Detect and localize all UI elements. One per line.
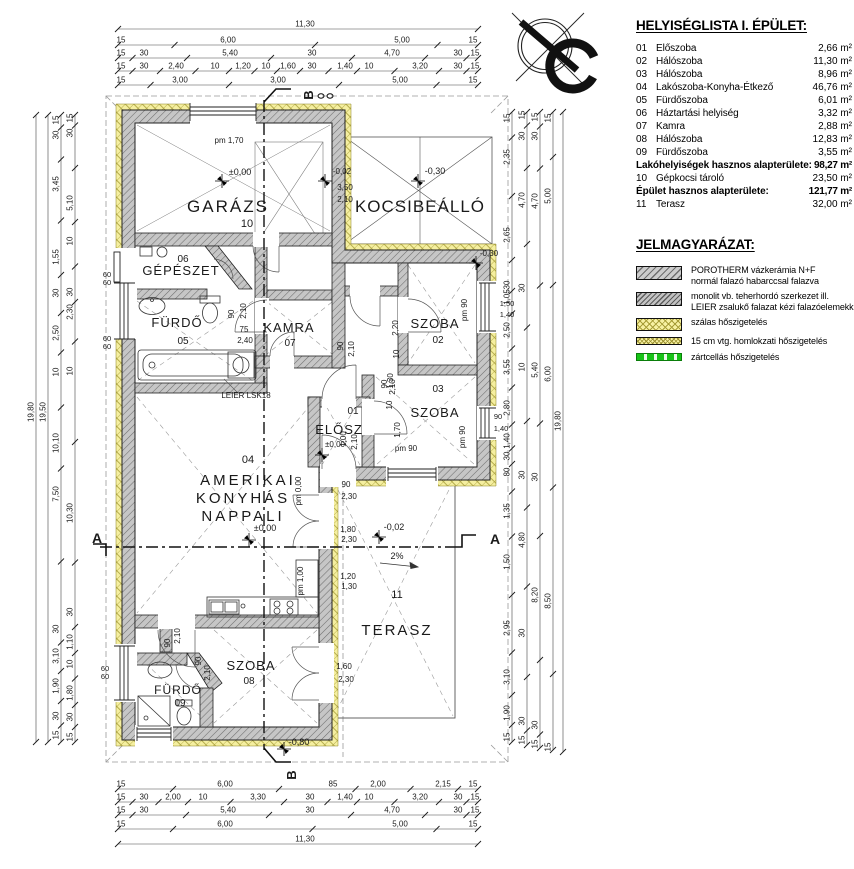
plan-label: 1,30 bbox=[341, 582, 357, 591]
dim-label: 15 bbox=[531, 739, 540, 748]
level-marker-star bbox=[242, 533, 256, 547]
dim-label: 3,20 bbox=[412, 793, 428, 802]
dim-label: 1,20 bbox=[235, 62, 251, 71]
dim-label: 85 bbox=[329, 780, 338, 789]
dim-label: 5,00 bbox=[394, 36, 410, 45]
room-number: 05 bbox=[177, 336, 189, 347]
dim-label: 2,50 bbox=[52, 325, 61, 341]
legend-item: zártcellás hőszigetelés bbox=[636, 352, 852, 363]
fiber-swatch bbox=[636, 318, 682, 331]
dim-label: 30 bbox=[454, 793, 463, 802]
dim-label: 15 bbox=[117, 820, 126, 829]
dim-label: 1,35 bbox=[503, 503, 512, 519]
room-list-row: 06Háztartási helyiség3,32 m² bbox=[636, 107, 852, 120]
dim-label: 60 bbox=[101, 672, 109, 681]
dim-label: 2,95 bbox=[503, 620, 512, 636]
level-label: -0,02 bbox=[333, 167, 352, 176]
dim-label: 30 bbox=[306, 806, 315, 815]
plan-label: 1,80 bbox=[340, 525, 356, 534]
dim-label: 6,00 bbox=[217, 820, 233, 829]
dim-label: 15 bbox=[117, 36, 126, 45]
plan-label: 2,30 bbox=[338, 675, 354, 684]
dim-label: 90 bbox=[494, 412, 502, 421]
legend-text: zártcellás hőszigetelés bbox=[691, 352, 779, 363]
dim-label: 1,40 bbox=[337, 793, 353, 802]
dim-label: 15 bbox=[469, 780, 478, 789]
room-label-garazs: GARÁZS bbox=[187, 197, 269, 216]
plan-label: 2,10 bbox=[173, 628, 182, 644]
legend-item: monolit vb. teherhordó szerkezet ill.LEI… bbox=[636, 291, 852, 312]
dim-label: 6,00 bbox=[220, 36, 236, 45]
dim-label: 11,30 bbox=[295, 835, 315, 844]
dim-label: 15 bbox=[469, 36, 478, 45]
dim-label: 2,80 bbox=[503, 400, 512, 416]
plan-label: 90 bbox=[336, 341, 345, 350]
plan-label: 90 bbox=[227, 309, 236, 318]
dim-label: 5,40 bbox=[531, 362, 540, 378]
room-list-title: HELYISÉGLISTA I. ÉPÜLET: bbox=[636, 18, 852, 33]
dim-label: 2,50 bbox=[503, 322, 512, 338]
dim-label: 4,70 bbox=[384, 49, 400, 58]
dim-label: 15 bbox=[117, 806, 126, 815]
dim-label: 19,80 bbox=[27, 401, 36, 422]
dim-label: 30 bbox=[306, 793, 315, 802]
room-number: 08 bbox=[243, 676, 255, 687]
door-szoba08-2 bbox=[292, 673, 319, 700]
dim-label: 30 bbox=[52, 130, 61, 139]
dim-label: 3,45 bbox=[52, 176, 61, 192]
dim-label: 30 bbox=[66, 128, 75, 137]
dim-label: 5,40 bbox=[222, 49, 238, 58]
plan-label: 10 bbox=[385, 400, 394, 409]
dim-label: 1,50 bbox=[503, 554, 512, 570]
dim-label: 4,80 bbox=[518, 532, 527, 548]
dim-label: 3,30 bbox=[250, 793, 266, 802]
plan-label: pm 0,00 bbox=[294, 476, 303, 505]
room-list-row: 02Hálószoba11,30 m² bbox=[636, 55, 852, 68]
dim-label: 5,10 bbox=[66, 195, 75, 211]
dim-label: 1,90 bbox=[503, 705, 512, 721]
dim-label: 1,40 bbox=[500, 310, 515, 319]
section-marker-a: A bbox=[490, 531, 500, 547]
legend-text: 15 cm vtg. homlokzati hőszigetelés bbox=[691, 336, 827, 347]
plan-label: 2,10 bbox=[203, 665, 212, 681]
dim-label: 1,60 bbox=[280, 62, 296, 71]
dim-label: 2,00 bbox=[370, 780, 386, 789]
dim-label: 15 bbox=[117, 76, 126, 85]
room-list-row: 09Fürdőszoba3,55 m² bbox=[636, 146, 852, 159]
room-number: 04 bbox=[242, 454, 254, 466]
plan-label: 2,10 bbox=[239, 303, 248, 319]
plan-label: pm 90 bbox=[460, 298, 469, 321]
dim-label: 4,70 bbox=[531, 193, 540, 209]
plan-label: pm 1,00 bbox=[296, 566, 305, 595]
dim-label: 11,30 bbox=[295, 20, 315, 29]
dim-label: 30 bbox=[518, 716, 527, 725]
room-list-row: 05Fürdőszoba6,01 m² bbox=[636, 94, 852, 107]
dim-label: 15 bbox=[471, 49, 480, 58]
dim-label: 1,90 bbox=[52, 678, 61, 694]
dim-label: 3,00 bbox=[172, 76, 188, 85]
level-label: ±0,00 bbox=[254, 523, 276, 533]
dim-label: 30 bbox=[140, 806, 149, 815]
dim-label: 30 bbox=[52, 288, 61, 297]
dim-label: 2,35 bbox=[503, 149, 512, 165]
dim-label: 30 bbox=[531, 131, 540, 140]
dim-label: 15 bbox=[469, 76, 478, 85]
dim-label: 15 bbox=[66, 113, 75, 122]
plan-label: pm 1,70 bbox=[215, 136, 244, 145]
dim-label: 30 bbox=[518, 628, 527, 637]
room-number: 09 bbox=[174, 698, 186, 709]
dim-label: 3,00 bbox=[270, 76, 286, 85]
dim-label: 30 bbox=[531, 472, 540, 481]
room-label-szoba-02: SZOBA bbox=[410, 316, 459, 331]
door-elosz bbox=[322, 365, 356, 399]
dim-label: 10 bbox=[262, 62, 271, 71]
legend-title: JELMAGYARÁZAT: bbox=[636, 237, 852, 252]
level-label: -0,02 bbox=[384, 522, 405, 532]
dim-label: 60 bbox=[103, 342, 111, 351]
dim-label: 30 bbox=[503, 451, 512, 460]
slope-arrow bbox=[380, 563, 418, 569]
dim-label: 30 bbox=[518, 283, 527, 292]
room-number: 02 bbox=[432, 335, 444, 346]
dim-label: 2,15 bbox=[435, 780, 451, 789]
room-label-szoba-03: SZOBA bbox=[410, 405, 459, 420]
plan-label: 90 bbox=[163, 638, 172, 647]
dim-label: 5,00 bbox=[392, 76, 408, 85]
level-marker-star bbox=[372, 530, 386, 544]
washing-machine bbox=[228, 352, 254, 378]
dim-label: 1,40 bbox=[337, 62, 353, 71]
dim-label: 30 bbox=[140, 793, 149, 802]
dim-label: 30 bbox=[518, 131, 527, 140]
dim-label: 15 bbox=[117, 62, 126, 71]
level-label: ±0,00 bbox=[229, 167, 251, 177]
dim-label: 10 bbox=[66, 366, 75, 375]
room-label-kamra: KAMRA bbox=[263, 320, 314, 335]
plan-label: 1,00 bbox=[339, 431, 348, 447]
dim-label: 15 bbox=[544, 113, 553, 122]
dim-label: 15 bbox=[471, 793, 480, 802]
carport-outline bbox=[345, 137, 492, 244]
room-list-row: 11Terasz32,00 m² bbox=[636, 198, 852, 211]
dim-label: 15 bbox=[471, 62, 480, 71]
shower bbox=[138, 696, 170, 726]
room-list-row: 07Kamra2,88 m² bbox=[636, 120, 852, 133]
dim-label: 30 bbox=[140, 49, 149, 58]
dim-label: 80 bbox=[503, 467, 512, 476]
dim-label: 8,50 bbox=[544, 593, 553, 609]
legend-item: POROTHERM vázkerámia N+Fnormál falazó ha… bbox=[636, 265, 852, 286]
dim-label: 10 bbox=[365, 793, 374, 802]
dim-label: 30 bbox=[66, 607, 75, 616]
dim-label: 15 bbox=[52, 730, 61, 739]
dim-label: 1,40 bbox=[494, 424, 509, 433]
dim-label: 2,30 bbox=[66, 304, 75, 320]
dim-label: 15 bbox=[52, 115, 61, 124]
dim-label: 30 bbox=[66, 712, 75, 721]
dim-label: 15 bbox=[117, 793, 126, 802]
info-panel: HELYISÉGLISTA I. ÉPÜLET: 01Előszoba2,66 … bbox=[636, 18, 852, 367]
dim-label: 10,30 bbox=[66, 502, 75, 523]
dim-label: 30 bbox=[140, 62, 149, 71]
dim-label: 3,10 bbox=[52, 648, 61, 664]
bathtub bbox=[138, 350, 256, 380]
dim-label: 1,55 bbox=[52, 249, 61, 265]
dim-label: 10 bbox=[66, 659, 75, 668]
plan-label: 1,60 bbox=[336, 662, 352, 671]
plan-label: 90 bbox=[342, 480, 351, 489]
plan-label: pm 90 bbox=[458, 425, 467, 448]
room-list-row: Lakóhelyiségek hasznos alapterülete:98,2… bbox=[636, 159, 852, 172]
dim-label: 15 bbox=[503, 732, 512, 741]
door-hall bbox=[350, 296, 380, 326]
plan-label: 10 bbox=[392, 349, 401, 358]
dim-label: 30 bbox=[503, 280, 512, 289]
dim-label: 7,50 bbox=[52, 486, 61, 502]
room-number: 01 bbox=[347, 406, 359, 417]
room-list-row: 04Lakószoba-Konyha-Étkező46,76 m² bbox=[636, 81, 852, 94]
dim-label: 10 bbox=[518, 362, 527, 371]
legend-text: szálas hőszigetelés bbox=[691, 317, 767, 328]
dim-label: 10 bbox=[365, 62, 374, 71]
room-list-row: Épület hasznos alapterülete:121,77 m² bbox=[636, 185, 852, 198]
dim-label: 15 bbox=[531, 112, 540, 121]
level-marker-star bbox=[215, 174, 229, 188]
washbasin-05 bbox=[139, 298, 165, 315]
dim-label: 2,65 bbox=[503, 227, 512, 243]
room-label-szoba-08: SZOBA bbox=[226, 658, 275, 673]
plan-label: 2,10 bbox=[337, 195, 353, 204]
dim-label: 15 bbox=[544, 742, 553, 751]
dim-label: 5,00 bbox=[544, 188, 553, 204]
dim-label: 15 bbox=[518, 110, 527, 119]
room-label-nappali: AMERIKAI bbox=[200, 472, 296, 489]
dim-label: 1,80 bbox=[66, 685, 75, 701]
room-label-furdo-05: FÜRDŐ bbox=[151, 315, 202, 330]
dim-label: 4,70 bbox=[384, 806, 400, 815]
plan-label: 90 bbox=[194, 656, 203, 665]
section-marker-b: B bbox=[284, 770, 299, 779]
dim-label: 10,10 bbox=[52, 432, 61, 453]
monolit-swatch bbox=[636, 292, 682, 306]
room-number: 07 bbox=[284, 338, 296, 349]
dim-label: 30 bbox=[531, 720, 540, 729]
dim-label: 1,10 bbox=[66, 634, 75, 650]
dim-label: 3,55 bbox=[503, 359, 512, 375]
door-terrace-2 bbox=[293, 521, 319, 547]
plan-label: 2,30 bbox=[341, 535, 357, 544]
dim-label: 6,00 bbox=[217, 780, 233, 789]
dim-label: 15 bbox=[471, 806, 480, 815]
dim-label: 30 bbox=[454, 49, 463, 58]
legend-list: POROTHERM vázkerámia N+Fnormál falazó ha… bbox=[636, 265, 852, 362]
dim-label: 6,00 bbox=[544, 366, 553, 382]
dim-label: 8,20 bbox=[531, 587, 540, 603]
door-szoba08-1 bbox=[292, 647, 319, 673]
dim-label: 10 bbox=[199, 793, 208, 802]
room-list: 01Előszoba2,66 m²02Hálószoba11,30 m²03Há… bbox=[636, 42, 852, 211]
plan-label: 1,20 bbox=[340, 572, 356, 581]
level-label: -0,30 bbox=[480, 249, 499, 258]
dim-label: 15 bbox=[518, 735, 527, 744]
room-label-gepeszet: GÉPÉSZET bbox=[142, 263, 219, 278]
plan-label: 2,20 bbox=[391, 320, 400, 336]
legend-text: monolit vb. teherhordó szerkezet ill.LEI… bbox=[691, 291, 854, 312]
legend-item: 15 cm vtg. homlokzati hőszigetelés bbox=[636, 336, 852, 347]
dim-label: 30 bbox=[454, 62, 463, 71]
section-marker-a: A bbox=[92, 530, 102, 546]
plan-label: 75 bbox=[240, 325, 249, 334]
plan-label: 1,70 bbox=[393, 422, 402, 438]
dim-label: 60 bbox=[103, 278, 111, 287]
dim-label: 15 bbox=[503, 113, 512, 122]
dim-label: 2,40 bbox=[168, 62, 184, 71]
plan-label: 2,10 bbox=[347, 341, 356, 357]
level-label: -0,30 bbox=[425, 166, 446, 176]
closedcell-swatch bbox=[636, 353, 682, 361]
plan-label: pm 90 bbox=[395, 444, 418, 453]
dim-label: 30 bbox=[52, 624, 61, 633]
room-list-row: 01Előszoba2,66 m² bbox=[636, 42, 852, 55]
plan-label: 2,10 bbox=[388, 379, 397, 395]
dim-label: 15 bbox=[469, 820, 478, 829]
dim-label: 10 bbox=[66, 236, 75, 245]
dim-label: 2,00 bbox=[165, 793, 181, 802]
dim-label: 15 bbox=[117, 780, 126, 789]
room-number: 11 bbox=[391, 589, 402, 601]
dim-label: 30 bbox=[308, 62, 317, 71]
level-marker-star bbox=[411, 174, 425, 188]
section-marker-b: B bbox=[301, 90, 316, 99]
dim-label: 3,10 bbox=[503, 669, 512, 685]
dim-label: 1,50 bbox=[500, 299, 515, 308]
room-label-kocsibeallo: KOCSIBEÁLLÓ bbox=[355, 197, 485, 216]
dim-label: 4,70 bbox=[518, 192, 527, 208]
section-flag-a-right bbox=[455, 535, 476, 547]
dim-label: 10 bbox=[52, 367, 61, 376]
dim-label: 3,20 bbox=[412, 62, 428, 71]
dim-label: 19,50 bbox=[39, 401, 48, 422]
porotherm-swatch bbox=[636, 266, 682, 280]
dim-label: 15 bbox=[66, 732, 75, 741]
plan-label: 2,40 bbox=[237, 336, 253, 345]
level-marker-star bbox=[318, 174, 332, 188]
facade-swatch bbox=[636, 337, 682, 345]
dim-label: 30 bbox=[66, 287, 75, 296]
dim-label: 30 bbox=[308, 49, 317, 58]
section-flag-b-top bbox=[264, 89, 291, 102]
dim-label: 19,80 bbox=[554, 410, 563, 431]
room-list-row: 03Hálószoba8,96 m² bbox=[636, 68, 852, 81]
legend-text: POROTHERM vázkerámia N+Fnormál falazó ha… bbox=[691, 265, 819, 286]
room-number: 10 bbox=[241, 218, 253, 230]
plan-label: 2,10 bbox=[350, 434, 359, 450]
plan-label: 3,50 bbox=[337, 183, 353, 192]
room-label-terasz: TERASZ bbox=[361, 622, 432, 639]
boiler bbox=[140, 247, 167, 257]
dim-label: 5,00 bbox=[392, 820, 408, 829]
dim-label: 1,40 bbox=[503, 433, 512, 449]
room-list-row: 10Gépkocsi tároló23,50 m² bbox=[636, 172, 852, 185]
room-label-furdo-09: FÜRDŐ bbox=[154, 682, 202, 697]
plan-label: LEIER LSK18 bbox=[221, 391, 271, 400]
plan-label: 2,30 bbox=[341, 492, 357, 501]
legend-item: szálas hőszigetelés bbox=[636, 317, 852, 331]
toilet-05 bbox=[200, 296, 220, 323]
room-list-row: 08Hálószoba12,83 m² bbox=[636, 133, 852, 146]
dim-label: 30 bbox=[518, 470, 527, 479]
dim-label: 15 bbox=[117, 49, 126, 58]
dim-label: 10 bbox=[211, 62, 220, 71]
room-label-nappali: KONYHÁS bbox=[196, 490, 290, 507]
dim-label: 5,40 bbox=[220, 806, 236, 815]
slope-label: 2% bbox=[390, 551, 403, 561]
stove bbox=[270, 599, 298, 615]
dim-label: 30 bbox=[454, 806, 463, 815]
architect-logo bbox=[512, 13, 594, 89]
room-number: 03 bbox=[432, 384, 444, 395]
dim-label: 30 bbox=[52, 711, 61, 720]
level-label: -0,80 bbox=[289, 737, 310, 747]
